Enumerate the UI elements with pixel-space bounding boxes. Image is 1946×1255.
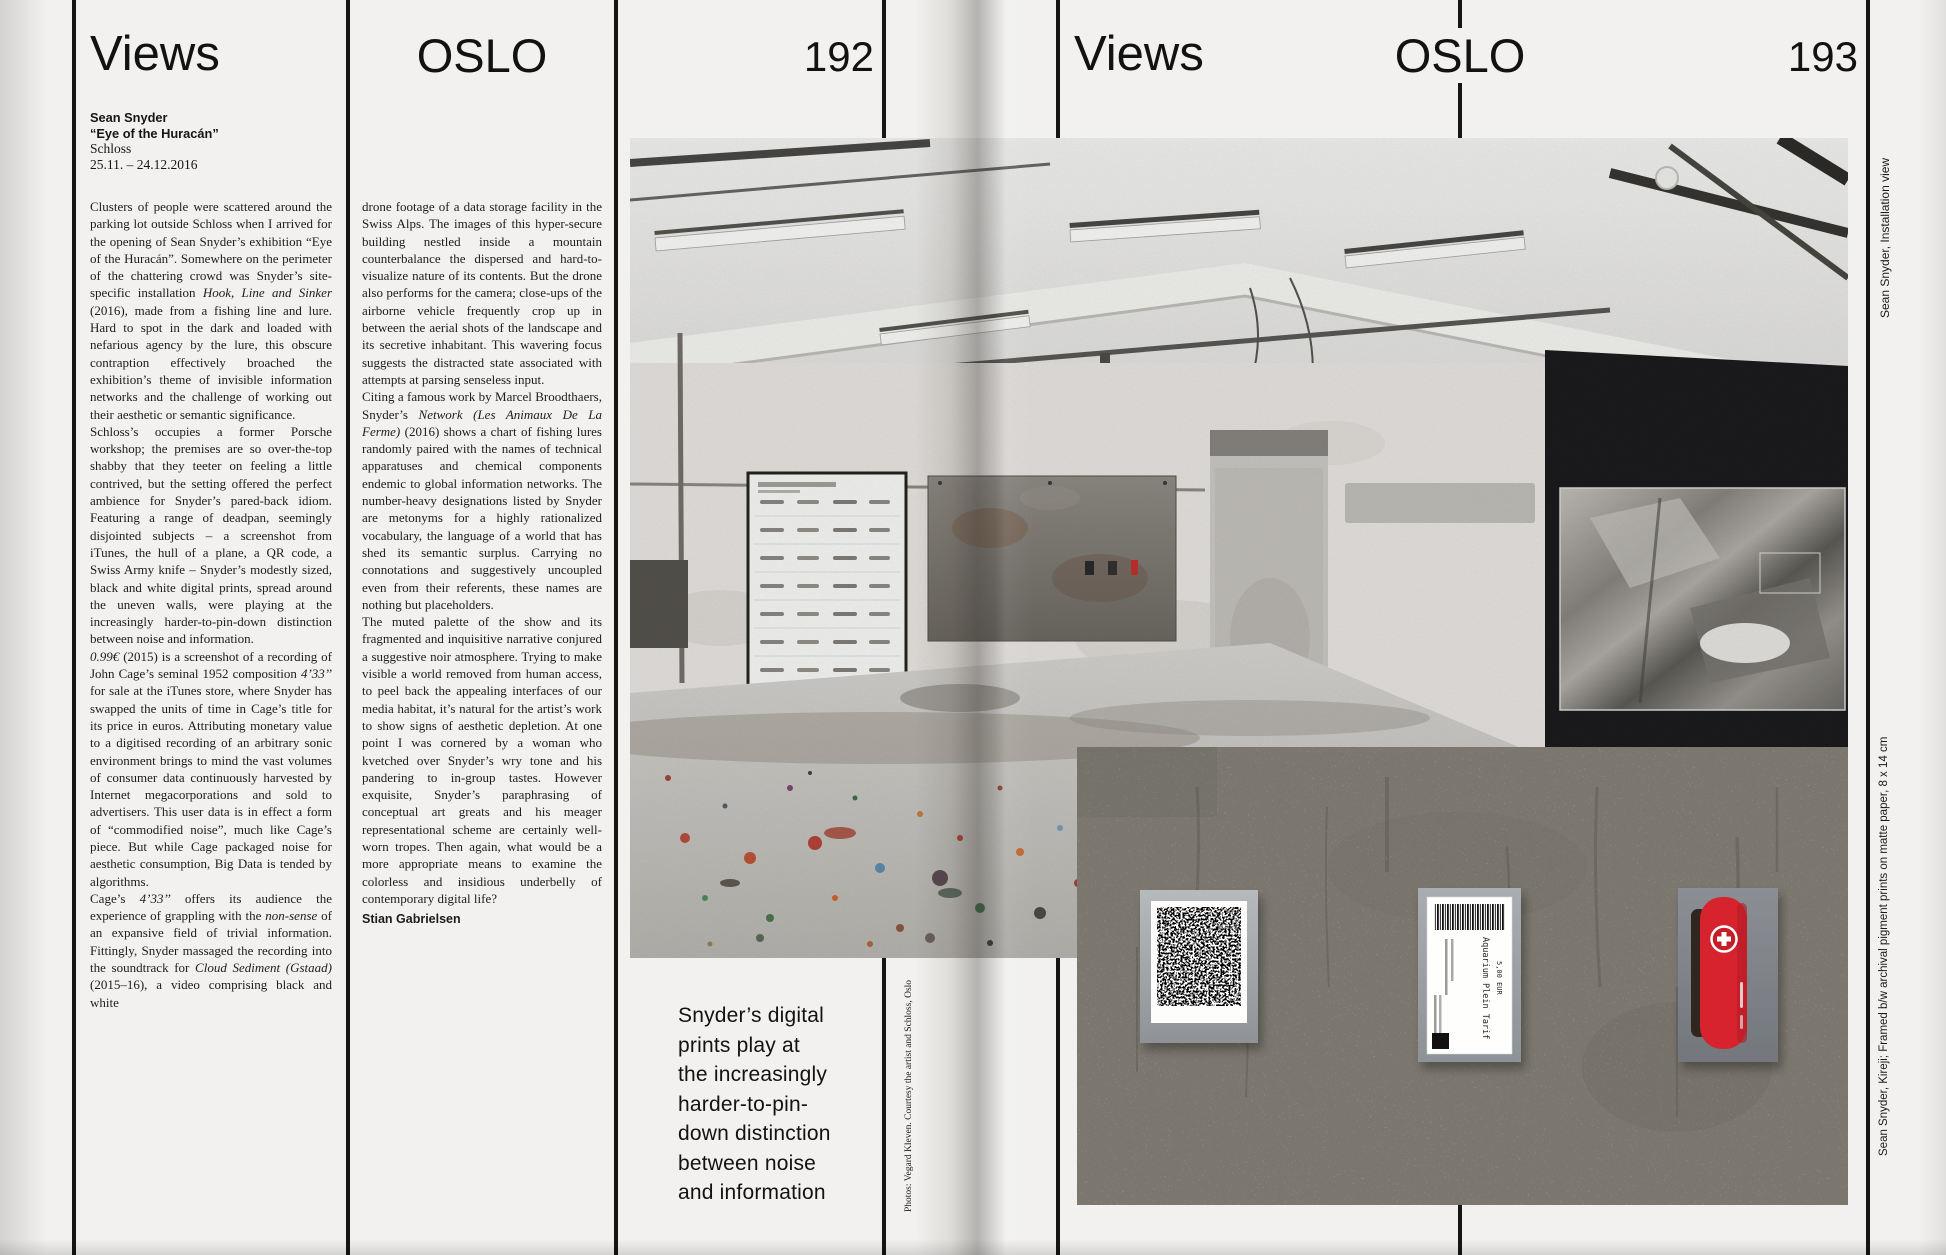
qr-code-print bbox=[1140, 890, 1258, 1043]
body-column-2-paragraphs: drone footage of a data storage facility… bbox=[362, 198, 602, 907]
left-page-edge-shadow bbox=[0, 0, 46, 1255]
swiss-knife-print bbox=[1678, 888, 1778, 1062]
venue-name: Schloss bbox=[90, 141, 219, 157]
ticket-print: Aquarium Plein Tarif 5,00 EUR bbox=[1418, 888, 1521, 1062]
author-byline: Stian Gabrielsen bbox=[362, 911, 602, 928]
exhibition-dates: 25.11. – 24.12.2016 bbox=[90, 157, 219, 173]
ticket-title: Aquarium Plein Tarif bbox=[1480, 937, 1490, 1039]
article-header: Sean Snyder “Eye of the Huracán” Schloss… bbox=[90, 110, 219, 172]
pull-quote: Snyder’s digital prints play at the incr… bbox=[678, 1001, 893, 1208]
column-rule-col2-photo bbox=[614, 0, 618, 1255]
section-title-left: Views bbox=[90, 26, 220, 82]
right-page-edge-shadow bbox=[1918, 0, 1946, 1255]
body-paragraph: drone footage of a data storage facility… bbox=[362, 198, 602, 388]
body-paragraph: Schloss’s occupies a former Porsche work… bbox=[90, 423, 332, 648]
body-column-2: drone footage of a data storage facility… bbox=[362, 198, 602, 928]
prints-caption: Sean Snyder, Kireji; Framed b/w archival… bbox=[1878, 698, 1890, 1156]
column-rule-col1-col2 bbox=[346, 0, 350, 1255]
body-paragraph: Clusters of people were scattered around… bbox=[90, 198, 332, 423]
city-label-left: OSLO bbox=[350, 28, 614, 83]
body-paragraph: 0.99€ (2015) is a screenshot of a record… bbox=[90, 648, 332, 890]
city-label-right: OSLO bbox=[1318, 28, 1602, 83]
ticket-black-mark bbox=[1432, 1033, 1449, 1049]
ticket-barcode bbox=[1434, 904, 1505, 930]
section-title-right: Views bbox=[1074, 26, 1204, 82]
ticket-price: 5,00 EUR bbox=[1495, 961, 1503, 996]
exhibition-title: “Eye of the Huracán” bbox=[90, 126, 219, 142]
body-column-1: Clusters of people were scattered around… bbox=[90, 198, 332, 1011]
column-rule-left-margin bbox=[72, 0, 76, 1255]
bottom-page-edge-shadow bbox=[0, 1239, 1946, 1255]
qr-noise-pattern bbox=[1157, 907, 1241, 1006]
body-paragraph: The muted palette of the show and its fr… bbox=[362, 613, 602, 907]
page-number-right: 193 bbox=[1672, 33, 1858, 81]
city-label-right-text: OSLO bbox=[1381, 28, 1540, 83]
column-rule-right-margin bbox=[1866, 0, 1870, 1255]
installation-view-caption: Sean Snyder, Installation view bbox=[1878, 136, 1892, 318]
page-number-left: 192 bbox=[690, 33, 874, 81]
artist-name: Sean Snyder bbox=[90, 110, 219, 126]
photo-credit-caption: Photos: Vegard Kleven. Courtesy the arti… bbox=[904, 952, 914, 1212]
body-paragraph: Cage’s 4’33’’ offers its audience the ex… bbox=[90, 890, 332, 1011]
prints-on-concrete-photo: Aquarium Plein Tarif 5,00 EUR bbox=[1077, 747, 1848, 1205]
magazine-spread: Views OSLO 192 Views OSLO 193 Sean Snyde… bbox=[0, 0, 1946, 1255]
body-paragraph: Citing a famous work by Marcel Broodthae… bbox=[362, 388, 602, 613]
